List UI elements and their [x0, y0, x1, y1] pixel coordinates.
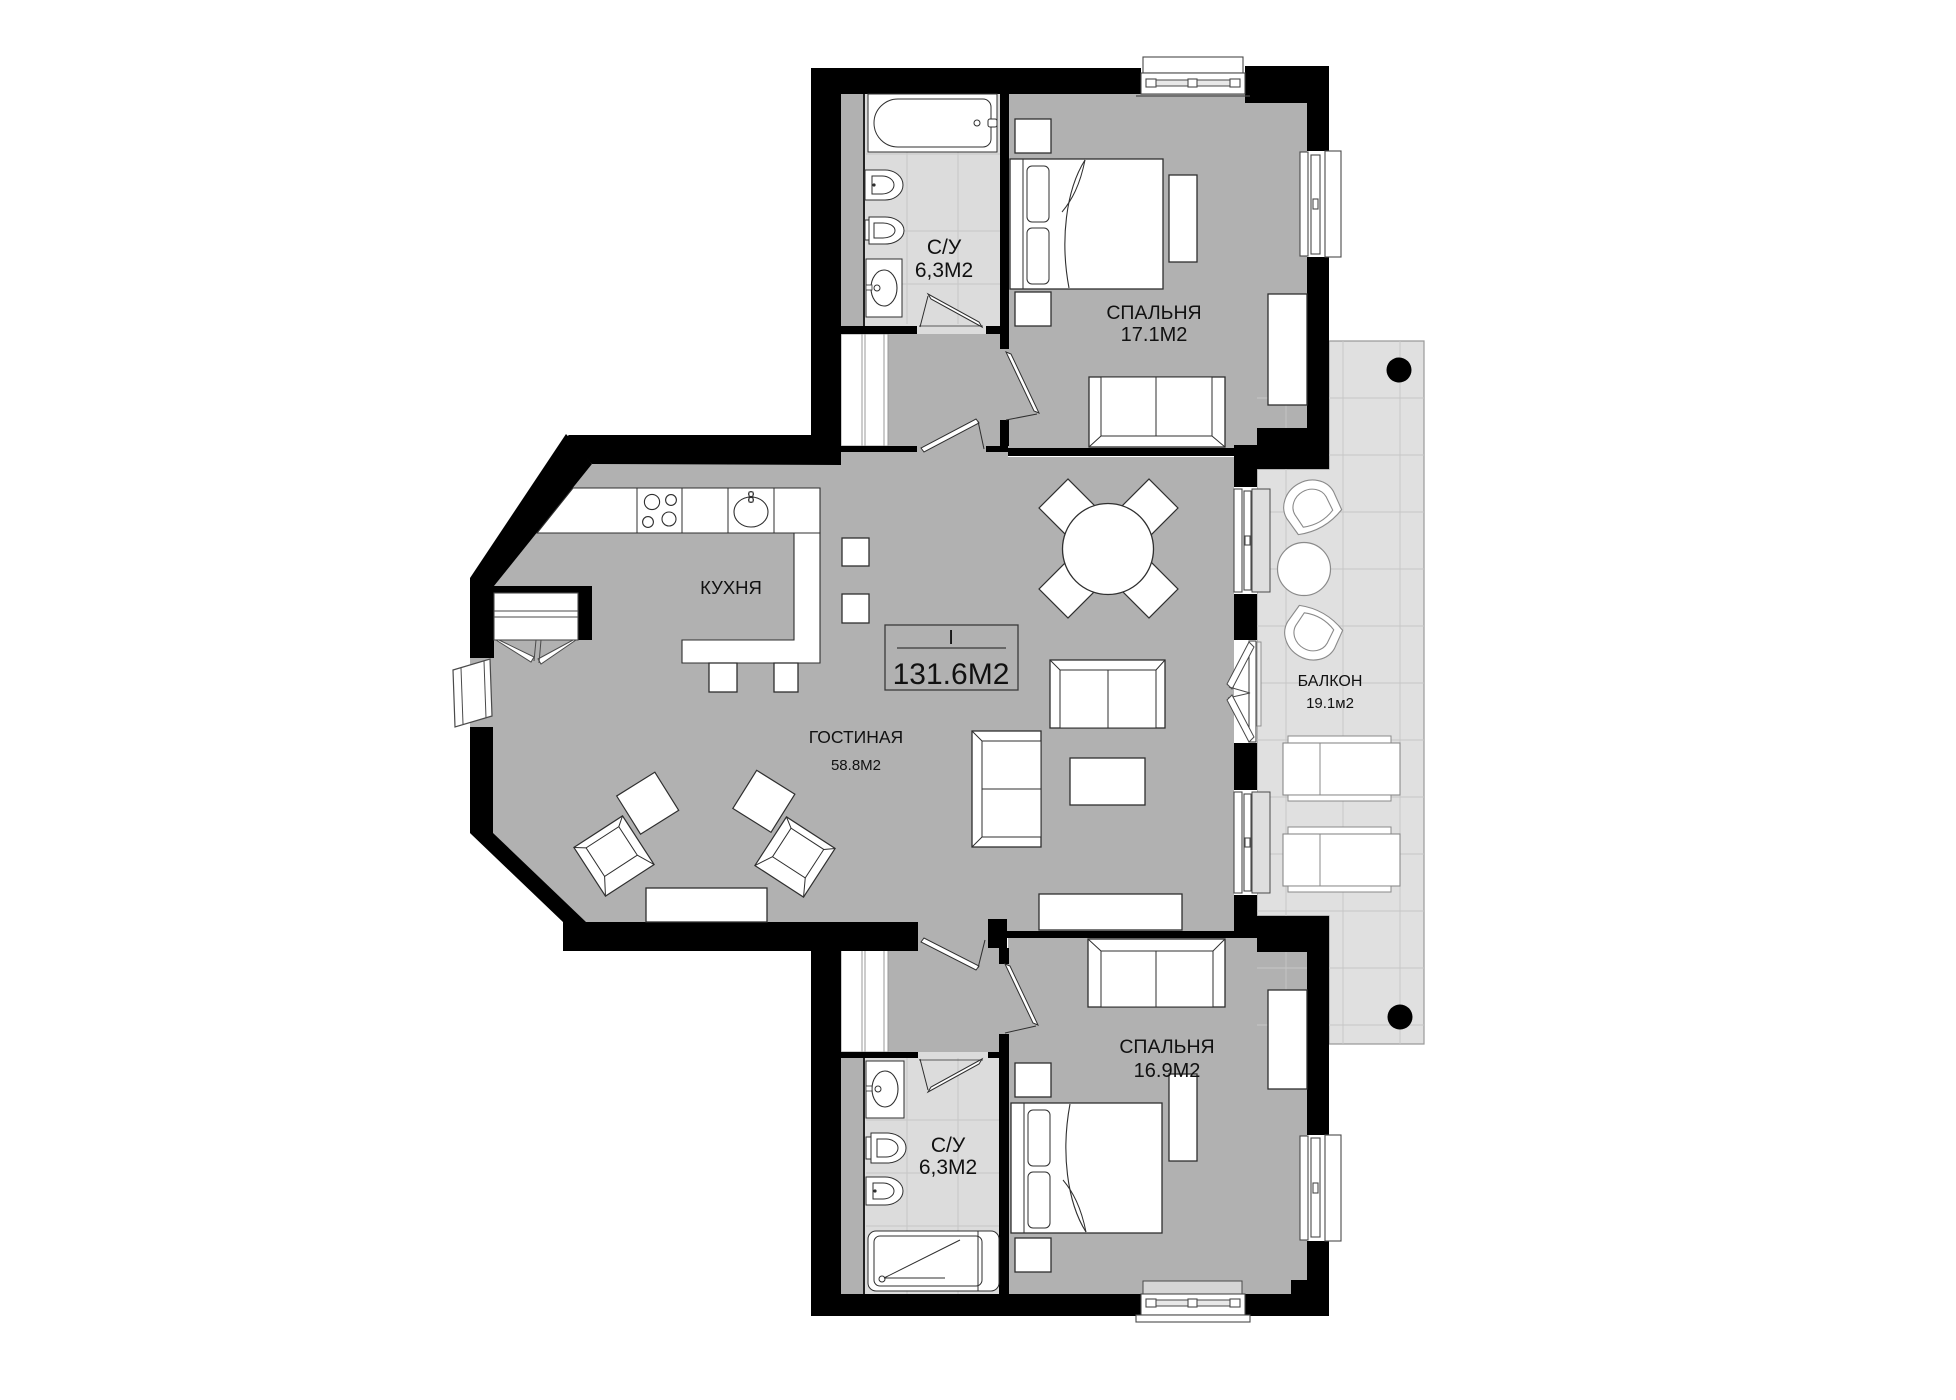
svg-text:16.9М2: 16.9М2 [1134, 1060, 1201, 1082]
svg-text:131.6М2: 131.6М2 [893, 658, 1010, 691]
svg-text:17.1М2: 17.1М2 [1121, 324, 1188, 346]
svg-text:С/У: С/У [927, 236, 962, 259]
svg-text:БАЛКОН: БАЛКОН [1298, 673, 1363, 690]
svg-text:СПАЛЬНЯ: СПАЛЬНЯ [1119, 1036, 1214, 1058]
svg-text:6,3М2: 6,3М2 [915, 259, 973, 282]
svg-text:ГОСТИНАЯ: ГОСТИНАЯ [809, 727, 903, 747]
svg-text:С/У: С/У [931, 1134, 966, 1157]
svg-text:СПАЛЬНЯ: СПАЛЬНЯ [1106, 302, 1201, 324]
svg-text:58.8М2: 58.8М2 [831, 757, 881, 774]
svg-text:I: I [948, 627, 954, 649]
svg-text:19.1м2: 19.1м2 [1306, 695, 1354, 712]
svg-text:6,3М2: 6,3М2 [919, 1156, 977, 1179]
svg-text:КУХНЯ: КУХНЯ [700, 577, 762, 598]
